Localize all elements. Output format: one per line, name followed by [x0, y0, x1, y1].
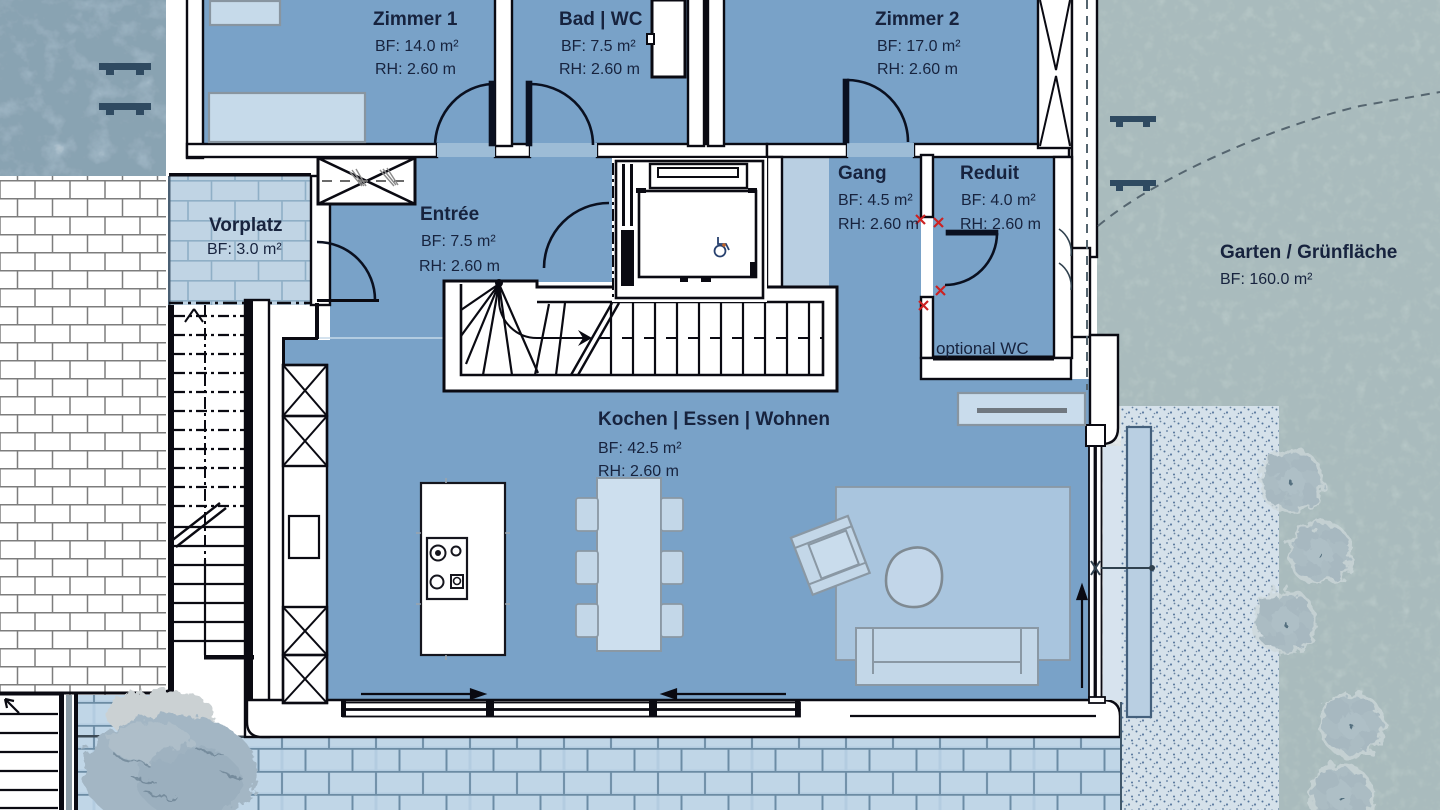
svg-text:Zimmer 2: Zimmer 2	[875, 9, 959, 30]
svg-text:RH: 2.60 m: RH: 2.60 m	[877, 61, 958, 78]
svg-text:BF: 14.0 m²: BF: 14.0 m²	[375, 38, 459, 55]
svg-text:Bad | WC: Bad | WC	[559, 9, 643, 30]
svg-text:BF: 3.0 m²: BF: 3.0 m²	[207, 241, 282, 258]
svg-text:RH: 2.60 m: RH: 2.60 m	[375, 61, 456, 78]
svg-text:Reduit: Reduit	[960, 163, 1020, 184]
svg-text:BF: 7.5 m²: BF: 7.5 m²	[421, 233, 496, 250]
svg-text:BF: 17.0 m²: BF: 17.0 m²	[877, 38, 961, 55]
svg-text:Entrée: Entrée	[420, 204, 479, 225]
svg-text:RH: 2.60 m: RH: 2.60 m	[419, 258, 500, 275]
svg-text:BF: 4.5 m²: BF: 4.5 m²	[838, 192, 913, 209]
svg-text:RH: 2.60 m: RH: 2.60 m	[598, 463, 679, 480]
svg-text:optional WC: optional WC	[936, 339, 1029, 358]
svg-text:RH: 2.60 m: RH: 2.60 m	[960, 216, 1041, 233]
svg-text:RH: 2.60 m: RH: 2.60 m	[838, 216, 919, 233]
svg-text:Kochen | Essen | Wohnen: Kochen | Essen | Wohnen	[598, 409, 830, 430]
svg-text:BF: 42.5 m²: BF: 42.5 m²	[598, 440, 682, 457]
svg-text:BF: 160.0 m²: BF: 160.0 m²	[1220, 271, 1313, 288]
svg-text:Vorplatz: Vorplatz	[209, 215, 283, 236]
svg-text:BF: 4.0 m²: BF: 4.0 m²	[961, 192, 1036, 209]
svg-text:Zimmer 1: Zimmer 1	[373, 9, 458, 30]
svg-text:Gang: Gang	[838, 163, 887, 184]
svg-text:Garten / Grünfläche: Garten / Grünfläche	[1220, 242, 1397, 263]
svg-text:RH: 2.60 m: RH: 2.60 m	[559, 61, 640, 78]
svg-text:BF: 7.5 m²: BF: 7.5 m²	[561, 38, 636, 55]
